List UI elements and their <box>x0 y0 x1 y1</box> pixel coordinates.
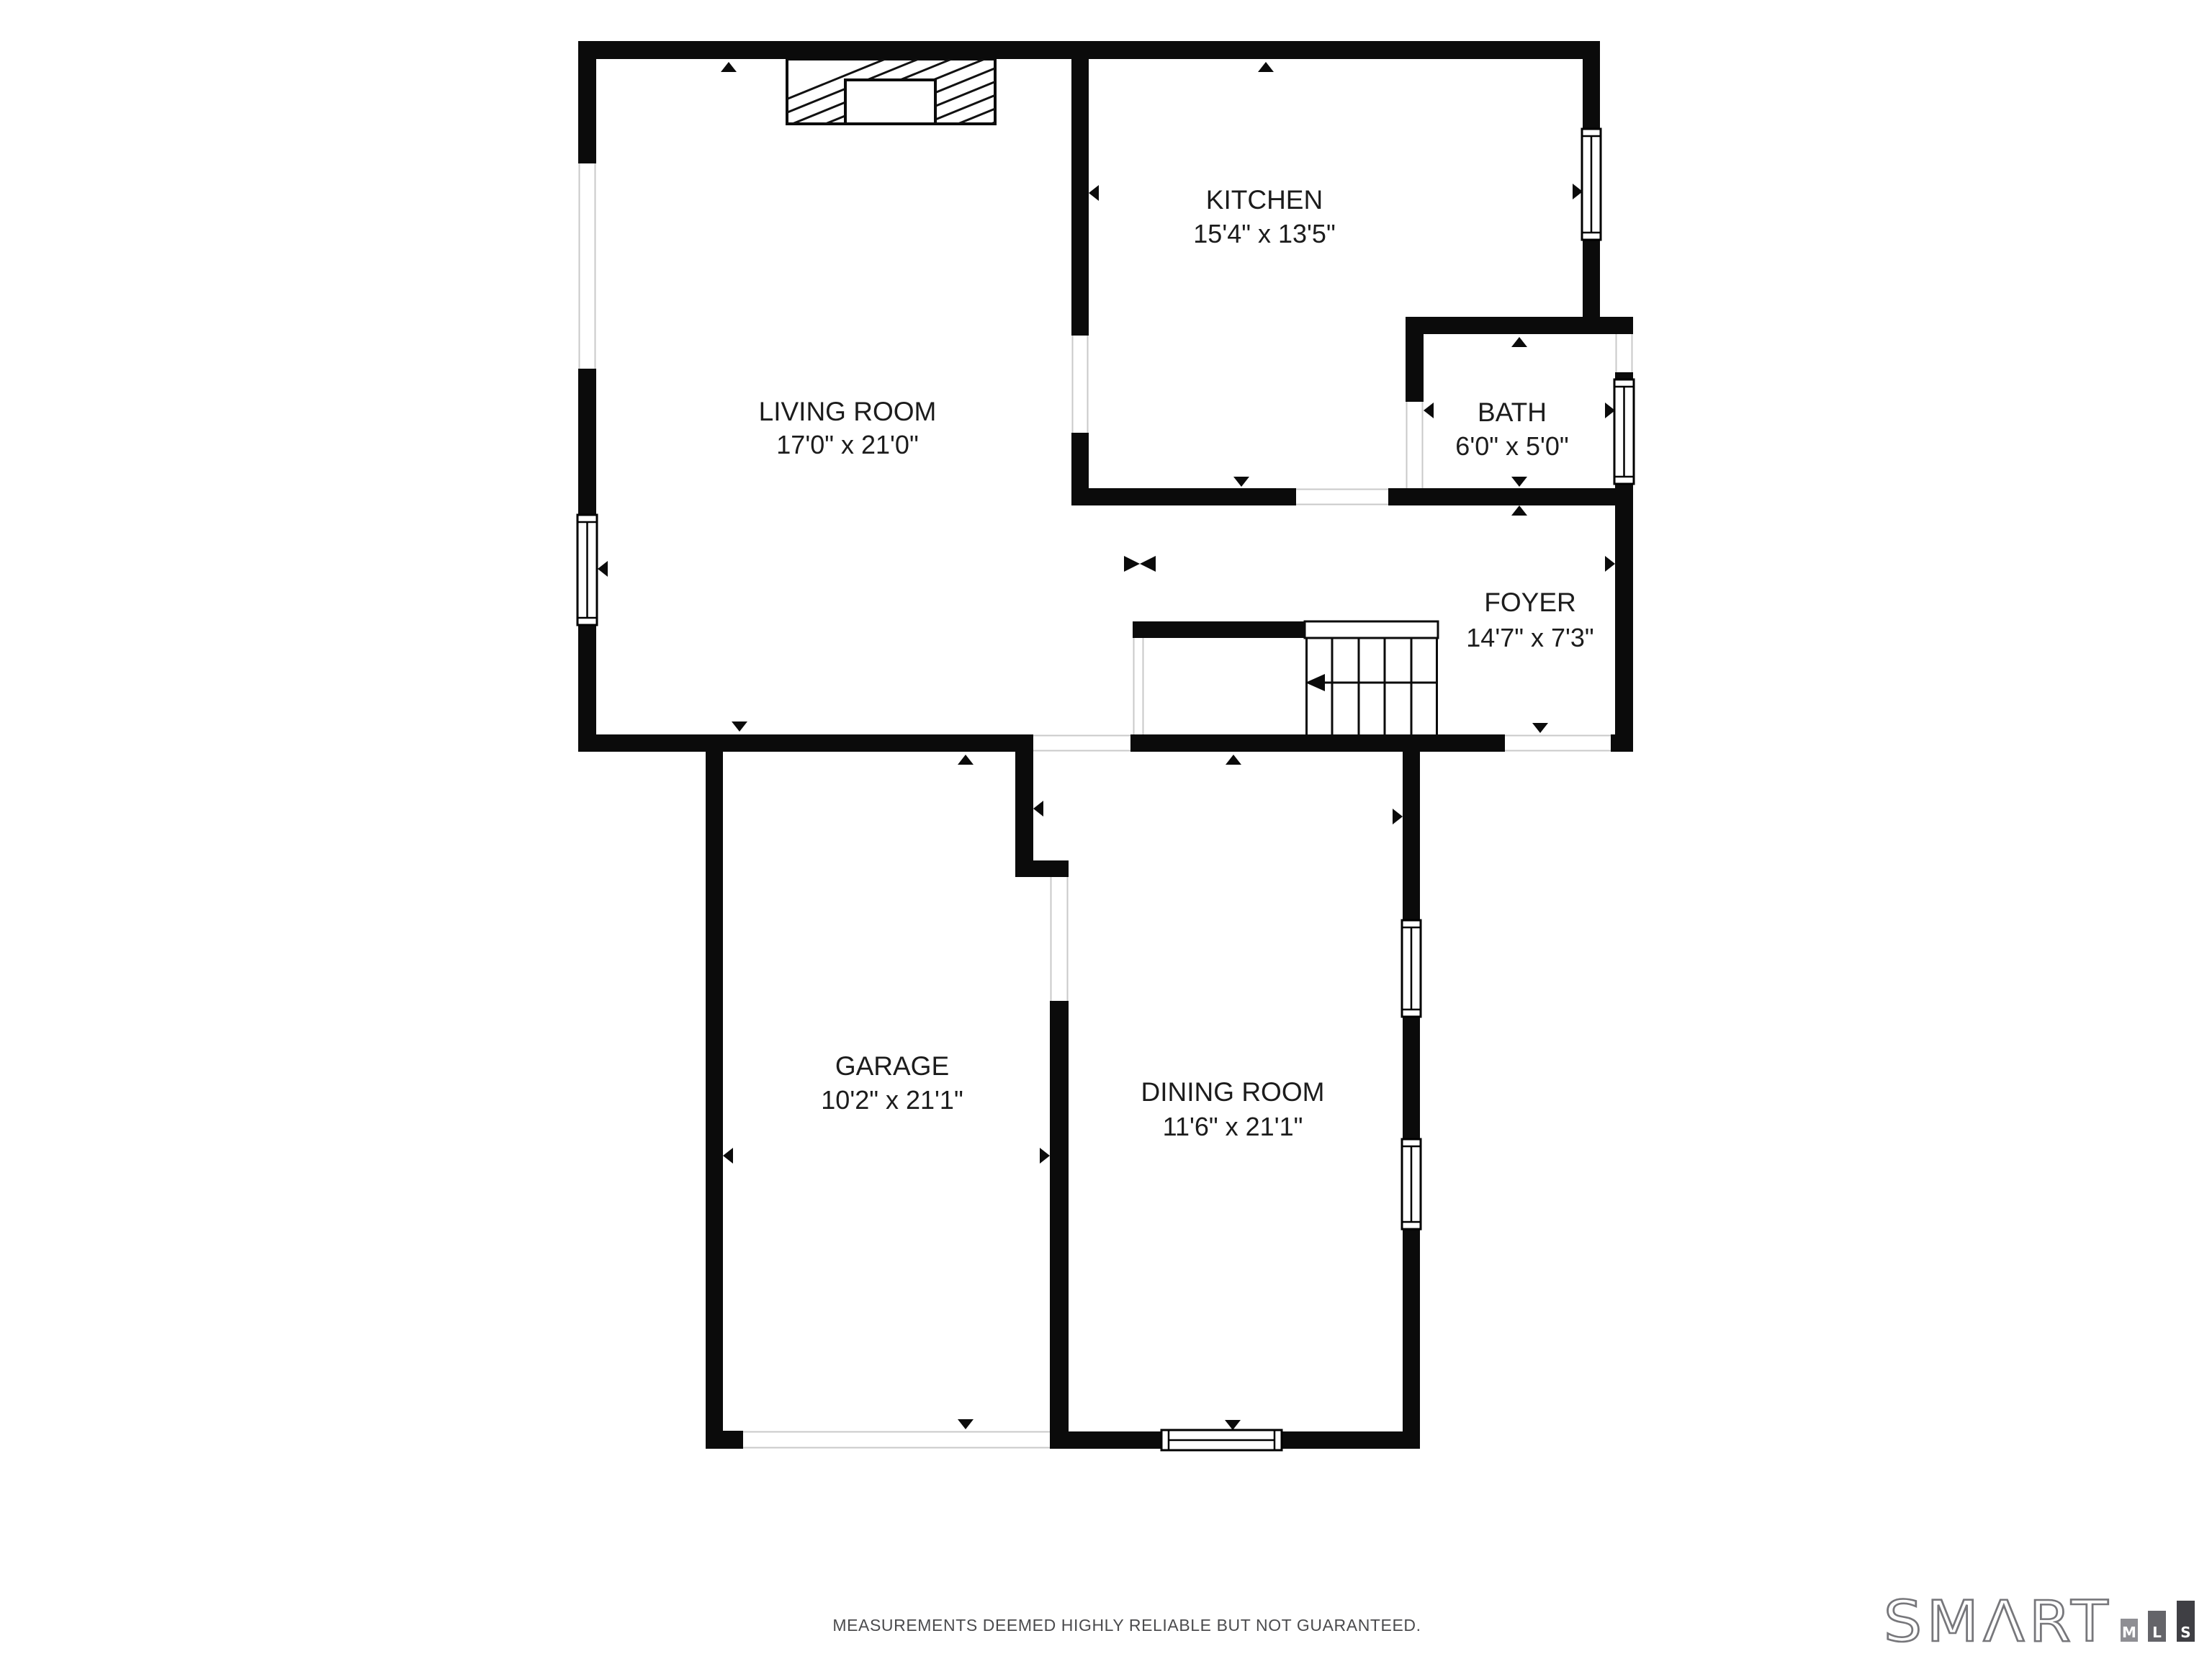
floorplan-page: LIVING ROOM 17'0" x 21'0" KITCHEN 15'4" … <box>0 0 2212 1659</box>
arrow-garage-bottom <box>958 1419 974 1429</box>
room-label-living-dims: 17'0" x 21'0" <box>776 430 918 459</box>
room-label-bath-dims: 6'0" x 5'0" <box>1455 431 1568 461</box>
wall-notch-horizontal <box>1033 860 1069 877</box>
wall-garage-dining <box>1050 1001 1069 1449</box>
wall-bath-left <box>1406 334 1424 402</box>
arrow-living-bottom <box>732 721 747 732</box>
stair-landing <box>1305 621 1438 638</box>
logo-brand-text: SMΛRT <box>1884 1590 2113 1655</box>
arrow-living-top <box>721 62 737 72</box>
walls <box>578 41 1633 1449</box>
arrow-boundary-right <box>1124 556 1140 572</box>
door-openings <box>580 163 1632 1448</box>
wall-mid-band-1 <box>578 734 1033 752</box>
wall-top <box>578 41 1600 59</box>
logo-bar-letter-s: S <box>2180 1624 2190 1641</box>
arrow-garage-right <box>1040 1148 1050 1164</box>
arrow-dining-left <box>1033 801 1043 817</box>
wall-kitchen-bottom <box>1071 488 1296 505</box>
arrow-dining-top <box>1226 755 1241 765</box>
wall-left-a <box>578 41 596 163</box>
room-label-dining-dims: 11'6" x 21'1" <box>1163 1112 1303 1141</box>
smartmls-logo: SMΛRT M L S <box>1884 1590 2195 1655</box>
firebox <box>845 80 935 124</box>
logo-bar-letter-m: M <box>2122 1624 2136 1641</box>
room-label-bath-name: BATH <box>1478 397 1547 427</box>
wall-bath-bottom <box>1388 488 1615 505</box>
stair-direction-arrow <box>1305 674 1325 691</box>
room-label-dining-name: DINING ROOM <box>1141 1077 1325 1107</box>
arrow-bath-top <box>1511 337 1527 347</box>
window-dining-bottom <box>1161 1430 1282 1450</box>
arrow-bath-bottom <box>1511 477 1527 487</box>
arrow-boundary-left <box>1140 556 1156 572</box>
wall-mid-band-2 <box>1130 734 1505 752</box>
fireplace <box>701 52 1168 134</box>
wall-notch-vertical <box>1015 752 1033 877</box>
wall-dining-bottom-a <box>1050 1431 1161 1449</box>
arrow-dining-right <box>1393 809 1403 824</box>
wall-kitchen-right-a <box>1583 59 1600 129</box>
wall-right-main <box>1615 482 1633 752</box>
arrow-kitchen-left <box>1089 185 1099 201</box>
room-label-kitchen-name: KITCHEN <box>1206 185 1323 215</box>
wall-garage-left <box>706 752 723 1449</box>
room-label-living-name: LIVING ROOM <box>759 397 937 426</box>
logo-bar-letter-l: L <box>2152 1624 2162 1641</box>
wall-dining-right-b <box>1403 1017 1420 1139</box>
stairs <box>1305 621 1438 734</box>
arrow-living-left <box>598 561 608 577</box>
arrow-bath-left <box>1424 403 1434 418</box>
wall-garage-bl-corner <box>706 1431 743 1449</box>
arrow-foyer-top <box>1511 505 1527 516</box>
arrow-kitchen-bottom <box>1233 477 1249 487</box>
floorplan-drawing: LIVING ROOM 17'0" x 21'0" KITCHEN 15'4" … <box>0 0 2212 1659</box>
disclaimer-text: MEASUREMENTS DEEMED HIGHLY RELIABLE BUT … <box>832 1616 1421 1635</box>
room-label-garage-name: GARAGE <box>835 1051 949 1081</box>
window-dining-right-1 <box>1402 920 1421 1017</box>
wall-bath-top <box>1406 317 1633 334</box>
window-bath-right <box>1614 379 1634 484</box>
arrow-garage-left <box>723 1148 733 1164</box>
wall-dining-right-a <box>1403 752 1420 920</box>
wall-left-c <box>578 625 596 752</box>
room-label-foyer-dims: 14'7" x 7'3" <box>1466 623 1593 652</box>
wall-dining-right-c <box>1403 1229 1420 1449</box>
wall-dining-bottom-b <box>1282 1431 1420 1449</box>
arrow-dining-bottom <box>1225 1420 1241 1430</box>
arrow-foyer-right <box>1605 556 1615 572</box>
wall-left-b <box>578 369 596 515</box>
arrow-foyer-bottom <box>1532 723 1548 733</box>
window-dining-right-2 <box>1402 1139 1421 1229</box>
wall-living-kitchen-a <box>1071 59 1089 336</box>
window-kitchen-right <box>1582 129 1601 240</box>
arrow-garage-top <box>958 755 974 765</box>
room-label-garage-dims: 10'2" x 21'1" <box>821 1085 963 1115</box>
room-label-foyer-name: FOYER <box>1484 588 1575 617</box>
room-label-kitchen-dims: 15'4" x 13'5" <box>1193 219 1335 248</box>
window-living-left <box>577 515 597 625</box>
wall-stair-top <box>1133 621 1305 638</box>
wall-mid-band-corner <box>1611 734 1633 752</box>
arrow-kitchen-top <box>1258 62 1274 72</box>
